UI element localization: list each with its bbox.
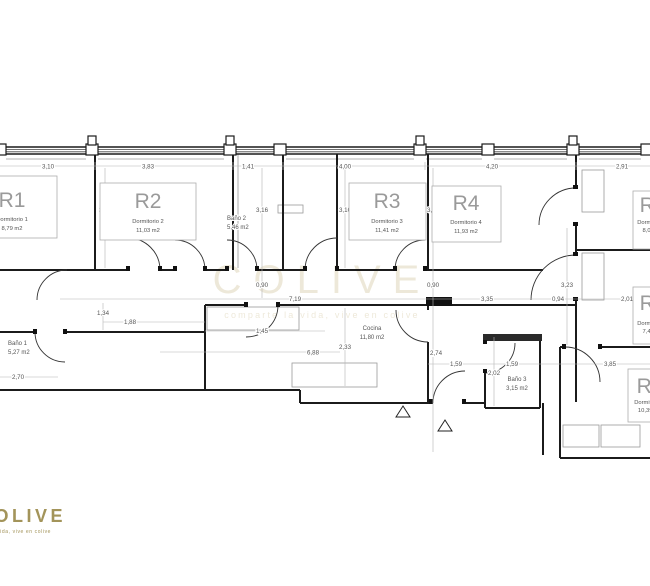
door-arc-entrance [433, 371, 465, 403]
window-glass-lines [6, 150, 641, 152]
logo-title: COLIVE [0, 506, 66, 526]
dim-label: 4,00 [339, 164, 352, 171]
jamb [225, 266, 229, 271]
dim-label: 2,33 [339, 344, 352, 351]
jamb [483, 340, 487, 344]
room-name: Dormitorio 7 [634, 400, 650, 406]
space-area: 3,15 m2 [506, 386, 528, 392]
watermark-title: COLIVE [213, 258, 432, 302]
dim-lines [0, 162, 650, 452]
space-area: 5,46 m2 [227, 225, 249, 231]
space-name: Baño 3 [507, 377, 527, 383]
room-area: 7,43 m2 [643, 329, 650, 335]
jamb [562, 344, 566, 349]
watermark-tagline: comparte la vida, vive en colive [224, 310, 419, 320]
pier-stub [88, 136, 96, 145]
room-id: R7 [637, 375, 650, 398]
logo-tagline: la vida, vive en colive [0, 529, 51, 535]
dim-label: 2,70 [12, 374, 25, 381]
door-arc-r4 [539, 188, 576, 225]
jamb [573, 185, 578, 189]
room-id: R5 [640, 194, 650, 217]
pier [567, 144, 579, 155]
room-area: 8,07 m2 [643, 228, 650, 234]
entrance-markers [396, 406, 452, 431]
space-area: 11,80 m2 [360, 335, 385, 341]
room-id: R4 [453, 192, 480, 215]
dimension-lines [0, 162, 650, 452]
door-arc-r2 [175, 240, 205, 270]
shelf [278, 205, 303, 213]
room-label-r6: R6 Dormitorio 6 7,43 m2 [633, 287, 650, 344]
room-label-r7: R7 Dormitorio 7 10,39 m2 [628, 369, 650, 422]
room-id: R6 [640, 292, 650, 315]
dim-label: 2,01 [621, 296, 634, 303]
dim-label: 1,59 [450, 361, 463, 368]
pier [274, 144, 286, 155]
jamb [126, 266, 130, 271]
space-name: Cocina [363, 326, 382, 332]
pier [86, 144, 98, 155]
door-arc-r1 [128, 238, 160, 270]
pier [0, 144, 6, 155]
pier [414, 144, 426, 155]
dim-label: 3,83 [142, 164, 155, 171]
jamb [335, 266, 339, 271]
interior-walls [0, 154, 650, 458]
jamb [158, 266, 162, 271]
space-area: 5,27 m2 [8, 350, 30, 356]
jamb [33, 329, 37, 334]
jamb [573, 222, 578, 226]
room-area: 10,39 m2 [638, 408, 650, 414]
watermark: COLIVE comparte la vida, vive en colive [213, 258, 432, 320]
jamb [173, 266, 177, 271]
room-name: Dormitorio 2 [132, 219, 164, 225]
room-name: Dormitorio 3 [371, 219, 403, 225]
room-name: Dormitorio 5 [637, 220, 650, 226]
room-label-r4: R4 Dormitorio 4 11,93 m2 [432, 186, 501, 242]
jamb [63, 329, 67, 334]
door-arc-hall-left [37, 270, 67, 300]
dim-label: 1,59 [506, 361, 519, 368]
pier [482, 144, 494, 155]
dim-label: 7,19 [289, 296, 302, 303]
jamb [573, 252, 578, 256]
dim-label: 0,90 [427, 282, 440, 289]
jamb [598, 344, 602, 349]
jamb [462, 399, 466, 404]
jamb [203, 266, 207, 271]
dim-label: 3,23 [561, 282, 574, 289]
door-arc-r7 [565, 347, 600, 382]
dim-label: 2,74 [430, 350, 443, 357]
dim-label: 1,45 [256, 328, 269, 335]
brand-logo: COLIVE la vida, vive en colive [0, 506, 66, 535]
room-id: R1 [0, 189, 25, 212]
bath3-thick-wall [483, 334, 542, 341]
dim-label: 0,94 [552, 296, 565, 303]
dim-label: 3,35 [481, 296, 494, 303]
room-id: R2 [135, 190, 162, 213]
room-label-r5: R5 Dormitorio 5 8,07 m2 [633, 191, 650, 249]
triangle-marker [438, 420, 452, 431]
room-label-r3: R3 Dormitorio 3 11,41 m2 [349, 183, 426, 240]
dim-label: 6,88 [307, 350, 320, 357]
dim-label: 1,41 [242, 164, 255, 171]
space-name: Baño 1 [8, 341, 28, 347]
pier-stub [569, 136, 577, 145]
jamb [423, 266, 427, 271]
furniture-r7-b [601, 425, 640, 447]
dim-label: 3,10 [42, 164, 55, 171]
jamb [483, 369, 487, 373]
room-name: Dormitorio 4 [450, 220, 482, 226]
pier-stub [416, 136, 424, 145]
floor-plan: COLIVE comparte la vida, vive en colive [0, 0, 650, 586]
kitchen-counter-bottom [292, 363, 377, 387]
pier [641, 144, 650, 155]
room-area: 11,93 m2 [454, 229, 478, 235]
dim-label: 1,88 [124, 319, 137, 326]
pier-stub [226, 136, 234, 145]
space-name: Baño 2 [227, 216, 247, 222]
room-name: Dormitorio 1 [0, 217, 28, 223]
dim-label: 1,34 [97, 310, 110, 317]
furniture-r7-a [563, 425, 599, 447]
pier [224, 144, 236, 155]
room-area: 8,79 m2 [2, 226, 23, 232]
jamb [303, 266, 307, 271]
entry-threshold [426, 297, 452, 306]
room-label-r2: R2 Dormitorio 2 11,03 m2 [100, 183, 196, 240]
room-label-r1: R1 Dormitorio 1 8,79 m2 [0, 176, 57, 238]
dim-label: 2,02 [488, 370, 501, 377]
dim-label: 3,16 [256, 207, 269, 214]
room-area: 11,41 m2 [375, 228, 399, 234]
door-arc-bath3 [485, 343, 515, 373]
door-arc-r6 [531, 255, 576, 300]
dim-label: 4,20 [486, 164, 499, 171]
closet-r6 [582, 253, 604, 300]
room-name: Dormitorio 6 [637, 321, 650, 327]
dim-label: 3,85 [604, 361, 617, 368]
jamb [429, 399, 433, 404]
jamb [244, 302, 248, 307]
dim-label: 0,90 [256, 282, 269, 289]
room-area: 11,03 m2 [136, 228, 160, 234]
room-id: R3 [374, 190, 401, 213]
jamb [255, 266, 259, 271]
windows [6, 150, 641, 152]
jamb [393, 266, 397, 271]
triangle-marker [396, 406, 410, 417]
dim-label: 2,91 [616, 164, 629, 171]
jamb [276, 302, 280, 307]
closet-r5 [582, 170, 604, 212]
door-arc-bath1 [35, 332, 65, 362]
